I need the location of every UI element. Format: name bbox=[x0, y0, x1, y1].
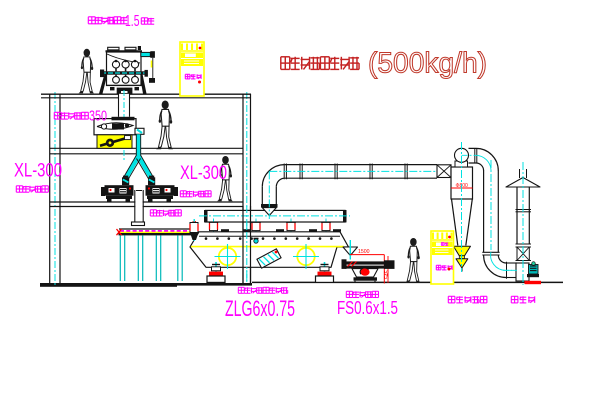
svg-text:(500kg/h): (500kg/h) bbox=[368, 48, 487, 80]
svg-text:1.5: 1.5 bbox=[125, 13, 140, 30]
svg-text:FS0.6x1.5: FS0.6x1.5 bbox=[337, 298, 398, 318]
svg-text:ZLG6x0.75: ZLG6x0.75 bbox=[225, 296, 295, 321]
svg-text:350: 350 bbox=[89, 108, 107, 125]
svg-text:1500: 1500 bbox=[358, 249, 370, 255]
svg-text:XL-300: XL-300 bbox=[14, 160, 62, 182]
svg-text:545: 545 bbox=[385, 270, 391, 279]
svg-text:XL-300: XL-300 bbox=[180, 162, 227, 184]
